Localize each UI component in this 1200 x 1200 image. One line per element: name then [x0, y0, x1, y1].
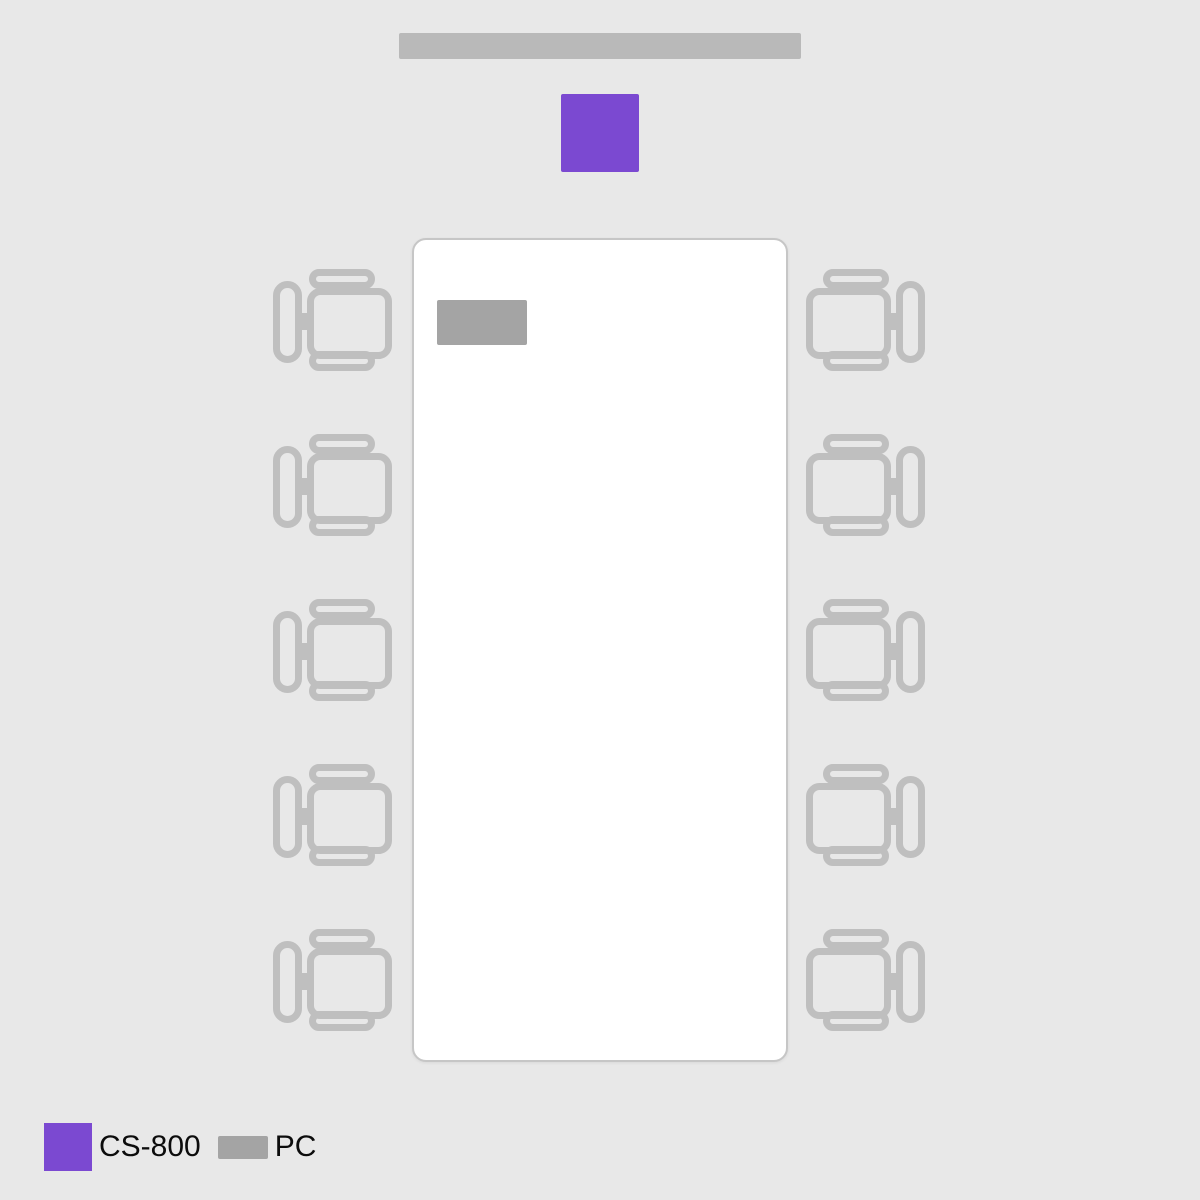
- legend-item-pc: PC: [218, 1123, 317, 1171]
- legend-label-cs800: CS-800: [99, 1123, 201, 1171]
- chair: [273, 268, 392, 372]
- chair: [806, 268, 925, 372]
- cs800-device[interactable]: [561, 94, 639, 172]
- legend-item-cs800: CS-800: [44, 1123, 201, 1171]
- room-canvas: CS-800 PC: [0, 0, 1200, 1200]
- meeting-table: [412, 238, 788, 1062]
- chair: [806, 763, 925, 867]
- pc-swatch-icon: [218, 1136, 268, 1159]
- chair: [806, 598, 925, 702]
- chair: [273, 598, 392, 702]
- chair: [273, 763, 392, 867]
- chair: [806, 433, 925, 537]
- chair: [806, 928, 925, 1032]
- pc-device[interactable]: [437, 300, 527, 345]
- chair-column-right: [806, 238, 925, 1062]
- chair-column-left: [273, 238, 392, 1062]
- display-screen: [399, 33, 801, 59]
- legend: CS-800 PC: [44, 1123, 316, 1171]
- cs800-swatch-icon: [44, 1123, 92, 1171]
- chair: [273, 928, 392, 1032]
- chair: [273, 433, 392, 537]
- legend-label-pc: PC: [275, 1123, 317, 1171]
